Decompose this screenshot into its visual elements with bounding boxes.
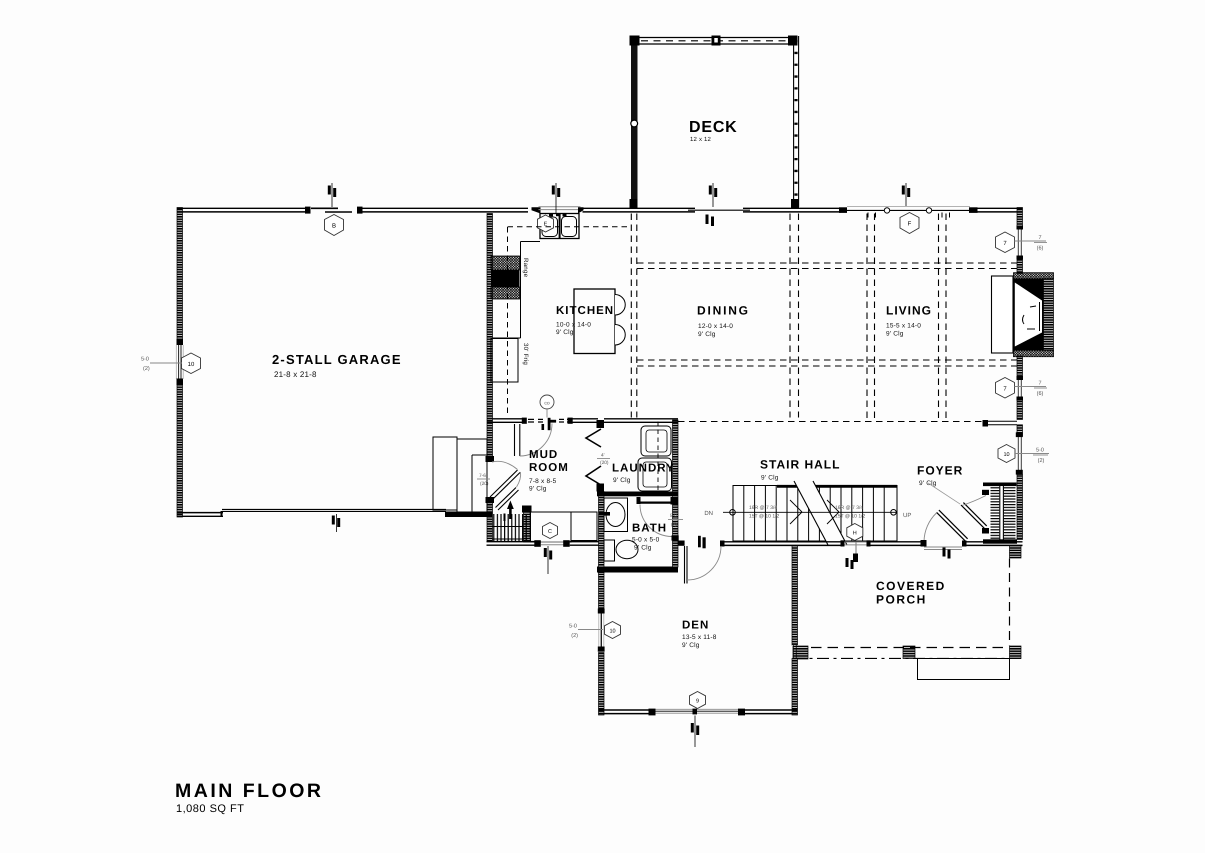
svg-text:5-0: 5-0 bbox=[670, 513, 677, 519]
svg-text:co: co bbox=[544, 401, 550, 407]
svg-text:9' Clg: 9' Clg bbox=[529, 486, 547, 493]
svg-text:5-0: 5-0 bbox=[1036, 448, 1044, 454]
svg-text:10: 10 bbox=[1003, 452, 1009, 458]
svg-text:C: C bbox=[548, 529, 552, 535]
svg-text:10-0 x 14-0: 10-0 x 14-0 bbox=[556, 322, 591, 329]
svg-text:BATH: BATH bbox=[632, 523, 667, 535]
svg-text:7-6: 7-6 bbox=[479, 473, 486, 479]
svg-text:MUD: MUD bbox=[529, 449, 558, 461]
svg-text:(2): (2) bbox=[671, 522, 677, 528]
svg-text:16R @ 7 3/4: 16R @ 7 3/4 bbox=[749, 505, 777, 511]
svg-text:15T @ 10 1/2: 15T @ 10 1/2 bbox=[835, 514, 866, 520]
svg-text:16R @ 7 3/4: 16R @ 7 3/4 bbox=[835, 505, 863, 511]
svg-text:5-0: 5-0 bbox=[141, 357, 149, 363]
svg-text:UP: UP bbox=[903, 512, 911, 519]
svg-text:STAIR HALL: STAIR HALL bbox=[760, 458, 840, 472]
svg-text:1,080 SQ FT: 1,080 SQ FT bbox=[176, 803, 244, 815]
svg-text:10: 10 bbox=[609, 629, 615, 635]
svg-text:9' Clg: 9' Clg bbox=[698, 331, 716, 338]
svg-text:DEN: DEN bbox=[682, 620, 709, 632]
svg-text:KITCHEN: KITCHEN bbox=[556, 305, 614, 317]
svg-text:9' Clg: 9' Clg bbox=[682, 642, 700, 649]
svg-text:DN: DN bbox=[704, 510, 713, 517]
svg-text:H: H bbox=[853, 531, 857, 537]
svg-text:15T @ 10 1/2: 15T @ 10 1/2 bbox=[749, 514, 780, 520]
svg-text:5-0 x 5-0: 5-0 x 5-0 bbox=[632, 537, 660, 544]
svg-text:5-0: 5-0 bbox=[569, 624, 577, 630]
svg-text:DECK: DECK bbox=[689, 119, 738, 136]
svg-text:F: F bbox=[908, 221, 912, 228]
svg-text:4': 4' bbox=[601, 453, 605, 459]
svg-text:(20): (20) bbox=[600, 460, 609, 466]
svg-text:LIVING: LIVING bbox=[886, 304, 932, 318]
svg-text:B: B bbox=[332, 223, 336, 230]
svg-text:(2): (2) bbox=[571, 633, 578, 639]
svg-text:2-STALL GARAGE: 2-STALL GARAGE bbox=[272, 352, 402, 367]
svg-text:12-0 x 14-0: 12-0 x 14-0 bbox=[698, 323, 733, 330]
svg-text:9' Clg: 9' Clg bbox=[556, 329, 574, 336]
svg-text:30' Frig: 30' Frig bbox=[522, 343, 529, 365]
svg-text:(6): (6) bbox=[1037, 246, 1044, 252]
svg-text:9' Clg: 9' Clg bbox=[919, 480, 937, 487]
svg-text:LAUNDRY: LAUNDRY bbox=[612, 463, 675, 475]
svg-text:DINING: DINING bbox=[697, 304, 750, 318]
svg-text:ROOM: ROOM bbox=[529, 462, 569, 474]
svg-text:Range: Range bbox=[522, 258, 529, 278]
svg-text:13-5 x 11-8: 13-5 x 11-8 bbox=[682, 634, 717, 641]
svg-text:COVERED: COVERED bbox=[876, 579, 946, 593]
svg-text:12 x 12: 12 x 12 bbox=[690, 136, 712, 143]
svg-text:9' Clg: 9' Clg bbox=[613, 477, 631, 484]
svg-text:7: 7 bbox=[1038, 235, 1041, 241]
svg-text:9' Clg: 9' Clg bbox=[761, 475, 779, 482]
svg-text:15-5 x 14-0: 15-5 x 14-0 bbox=[886, 323, 921, 330]
svg-text:(20): (20) bbox=[480, 481, 489, 487]
svg-text:9: 9 bbox=[696, 699, 699, 705]
svg-text:10: 10 bbox=[188, 361, 195, 368]
svg-text:(2): (2) bbox=[143, 366, 150, 372]
svg-text:9' Clg: 9' Clg bbox=[886, 331, 904, 338]
svg-text:FOYER: FOYER bbox=[917, 464, 963, 478]
svg-text:9' Clg: 9' Clg bbox=[634, 545, 652, 552]
svg-text:(6): (6) bbox=[1037, 391, 1044, 397]
svg-text:7: 7 bbox=[1038, 381, 1041, 387]
svg-text:21-8 x 21-8: 21-8 x 21-8 bbox=[274, 370, 317, 379]
svg-text:PORCH: PORCH bbox=[876, 593, 927, 607]
svg-text:(2): (2) bbox=[1038, 458, 1045, 464]
svg-text:7-8 x 8-5: 7-8 x 8-5 bbox=[529, 478, 557, 485]
svg-text:MAIN FLOOR: MAIN FLOOR bbox=[175, 780, 323, 802]
